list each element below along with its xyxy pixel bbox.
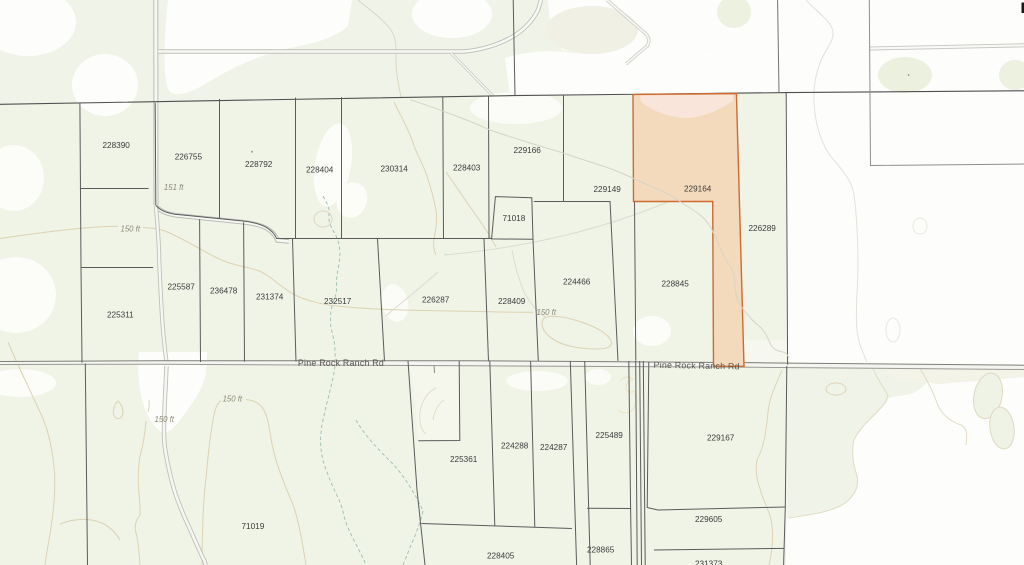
svg-text:229166: 229166 bbox=[514, 146, 542, 155]
svg-text:232517: 232517 bbox=[324, 297, 352, 306]
svg-text:228390: 228390 bbox=[103, 141, 131, 150]
svg-text:Pine Rock Ranch Rd: Pine Rock Ranch Rd bbox=[653, 360, 739, 372]
svg-text:229149: 229149 bbox=[594, 185, 622, 194]
svg-text:228865: 228865 bbox=[587, 546, 615, 555]
svg-text:236478: 236478 bbox=[210, 286, 238, 295]
svg-text:225311: 225311 bbox=[107, 310, 134, 319]
svg-text:228409: 228409 bbox=[498, 297, 526, 306]
svg-text:71018: 71018 bbox=[503, 214, 526, 223]
svg-text:150 ft: 150 ft bbox=[121, 224, 141, 233]
svg-text:228405: 228405 bbox=[487, 552, 515, 561]
svg-text:226287: 226287 bbox=[422, 295, 450, 304]
svg-text:228792: 228792 bbox=[245, 160, 273, 169]
svg-text:228845: 228845 bbox=[662, 280, 690, 289]
svg-text:226755: 226755 bbox=[175, 153, 203, 162]
svg-text:230314: 230314 bbox=[381, 164, 409, 173]
svg-text:228404: 228404 bbox=[306, 166, 334, 175]
svg-text:225489: 225489 bbox=[596, 431, 624, 440]
svg-text:231373: 231373 bbox=[695, 560, 723, 565]
svg-text:224288: 224288 bbox=[501, 441, 529, 450]
svg-text:150 ft: 150 ft bbox=[223, 395, 243, 404]
svg-text:228403: 228403 bbox=[453, 163, 481, 172]
svg-text:71019: 71019 bbox=[242, 522, 265, 531]
svg-text:229164: 229164 bbox=[684, 185, 712, 194]
svg-text:150 ft: 150 ft bbox=[537, 308, 557, 317]
svg-text:Pine Rock Ranch Rd: Pine Rock Ranch Rd bbox=[298, 358, 384, 368]
svg-text:224287: 224287 bbox=[540, 443, 568, 452]
svg-text:231374: 231374 bbox=[256, 292, 284, 301]
svg-text:150 ft: 150 ft bbox=[155, 415, 175, 424]
svg-text:225361: 225361 bbox=[450, 455, 478, 464]
svg-text:229605: 229605 bbox=[695, 515, 723, 524]
svg-text:226289: 226289 bbox=[749, 224, 777, 233]
svg-text:225587: 225587 bbox=[168, 282, 196, 291]
svg-text:229167: 229167 bbox=[707, 433, 735, 442]
svg-text:224466: 224466 bbox=[563, 278, 591, 287]
svg-text:151 ft: 151 ft bbox=[164, 183, 184, 192]
